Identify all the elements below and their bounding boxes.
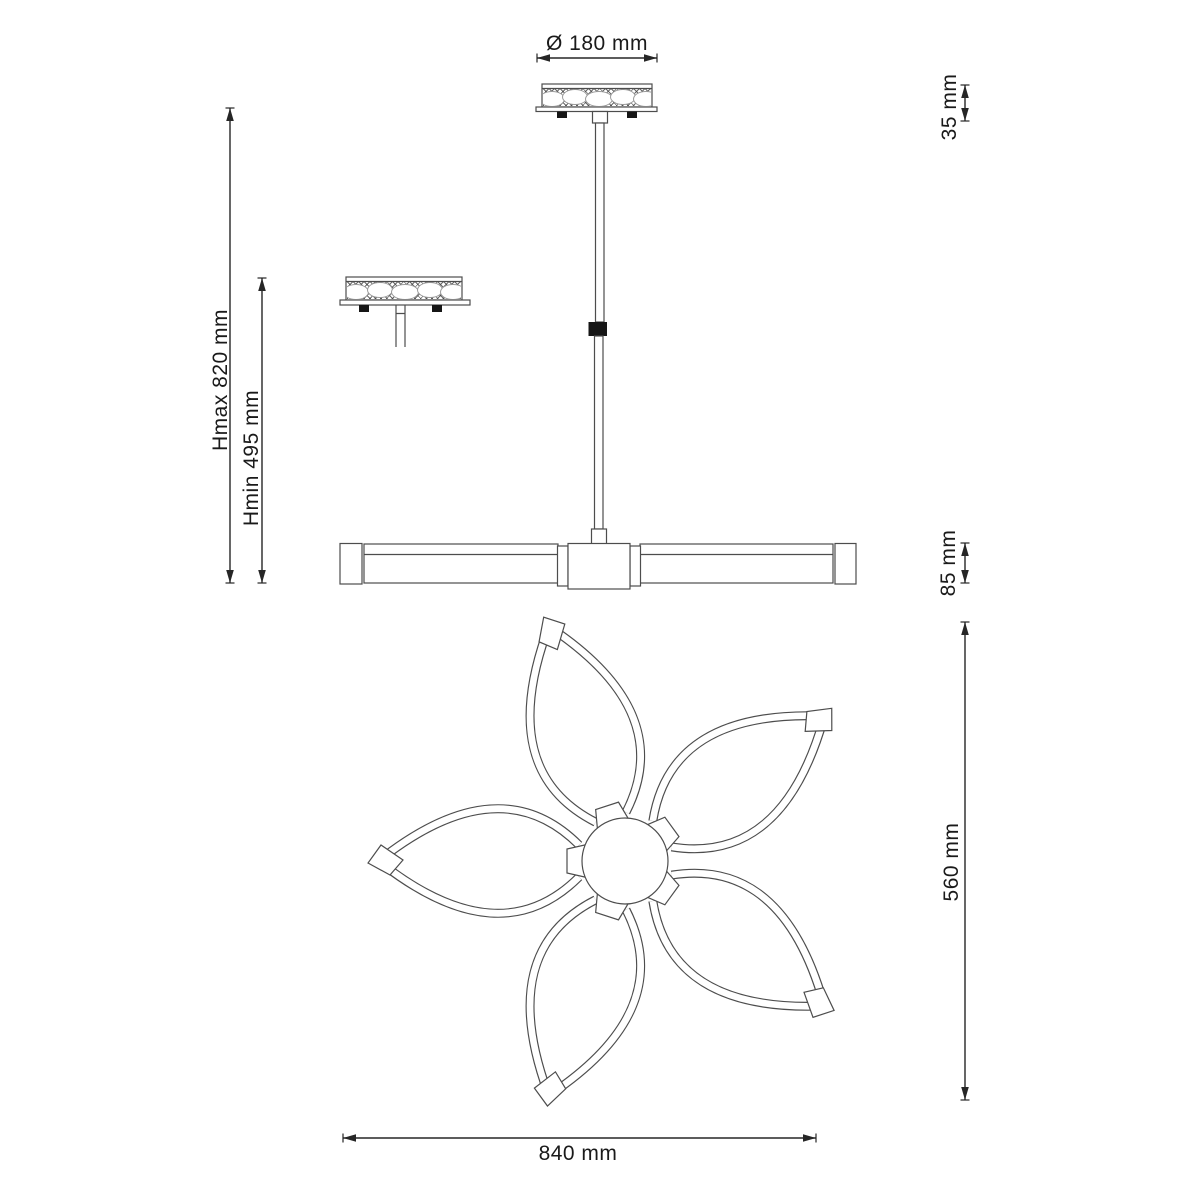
dimension-top-view-height: 560 mm	[940, 622, 970, 1100]
arrowhead	[226, 108, 234, 121]
arrowhead	[961, 570, 969, 583]
flower-top-view	[368, 600, 864, 1121]
arrowhead	[258, 278, 266, 291]
petal-tip-cap	[530, 1067, 569, 1110]
dimension-height-max: Hmax 820 mm	[209, 108, 235, 583]
dimension-height-min: Hmin 495 mm	[240, 278, 267, 583]
canopy-foot	[432, 305, 442, 312]
arrowhead	[961, 108, 969, 121]
label-height-min: Hmin 495 mm	[240, 390, 263, 526]
canopy-min-view	[340, 277, 470, 347]
bar-tube-left	[364, 544, 558, 583]
arrowhead	[644, 54, 657, 62]
canopy-foot	[557, 112, 567, 119]
dimension-top-view-width: 840 mm	[343, 1134, 816, 1166]
dimension-canopy-diameter: Ø 180 mm	[537, 32, 657, 63]
lamp-dimension-svg: Ø 180 mm 35 mm Hmax 820 mm Hmin 495 mm	[0, 0, 1200, 1200]
dimension-canopy-height: 35 mm	[938, 74, 970, 141]
label-bar-height: 85 mm	[937, 530, 960, 597]
petal	[368, 809, 589, 914]
arrowhead	[343, 1134, 356, 1142]
canopy-base-plate	[536, 107, 657, 112]
rod-upper-segment	[596, 123, 605, 322]
canopy-drum	[542, 84, 652, 107]
label-top-view-height: 560 mm	[940, 823, 963, 902]
arrowhead	[961, 543, 969, 556]
hub-box	[568, 544, 630, 590]
bar-end-cap-left	[340, 544, 362, 585]
canopy-foot	[627, 112, 637, 119]
arrowhead	[258, 570, 266, 583]
arrowhead	[961, 622, 969, 635]
label-height-max: Hmax 820 mm	[209, 309, 232, 451]
arrowhead	[226, 570, 234, 583]
drawing-canvas: Ø 180 mm 35 mm Hmax 820 mm Hmin 495 mm	[0, 0, 1200, 1200]
canopy-foot	[359, 305, 369, 312]
hub-flange-right	[630, 546, 641, 586]
canopy-drum	[346, 277, 462, 300]
bar-side-view	[340, 544, 856, 590]
dimension-bar-height: 85 mm	[937, 530, 970, 597]
suspension-rod	[589, 123, 608, 544]
canopy-front-view	[536, 84, 657, 123]
rod-connector	[589, 322, 608, 336]
arrowhead	[803, 1134, 816, 1142]
rod-lower-segment	[595, 336, 604, 529]
arrowhead	[537, 54, 550, 62]
label-canopy-height: 35 mm	[938, 74, 961, 141]
arrowhead	[961, 85, 969, 98]
canopy-base-plate	[340, 300, 470, 305]
bar-tube-right	[640, 544, 833, 583]
technical-drawing-page: { "drawing": { "subject": "pendant-lamp-…	[0, 0, 1200, 1200]
label-canopy-diameter: Ø 180 mm	[546, 32, 648, 55]
label-top-view-width: 840 mm	[539, 1142, 618, 1165]
flower-center-hub	[582, 818, 668, 904]
rod-hub-nub	[592, 529, 607, 544]
rod-collar	[593, 112, 608, 124]
hub-flange-left	[558, 546, 569, 586]
rod-stub	[396, 305, 405, 347]
arrowhead	[961, 1087, 969, 1100]
bar-end-cap-right	[835, 544, 856, 585]
